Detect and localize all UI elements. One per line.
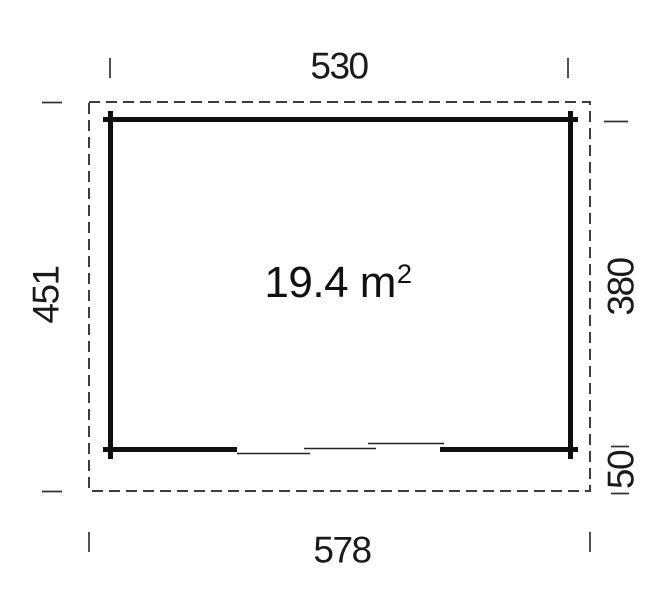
dimension-label-left-depth: 451	[28, 266, 65, 323]
dimension-label-bottom-width: 578	[313, 532, 370, 569]
dimension-label-right-inner-depth: 380	[603, 258, 640, 315]
floor-area-superscript: 2	[397, 260, 412, 287]
floor-plan-canvas: 530 578 451 380 50 19.4 m2	[0, 0, 670, 607]
floor-area-value: 19.4 m	[264, 258, 396, 307]
dimension-label-right-front-depth: 50	[603, 451, 640, 489]
floor-area-label: 19.4 m2	[264, 261, 411, 305]
door-opening	[237, 444, 444, 454]
dimension-label-top-width: 530	[310, 48, 367, 85]
